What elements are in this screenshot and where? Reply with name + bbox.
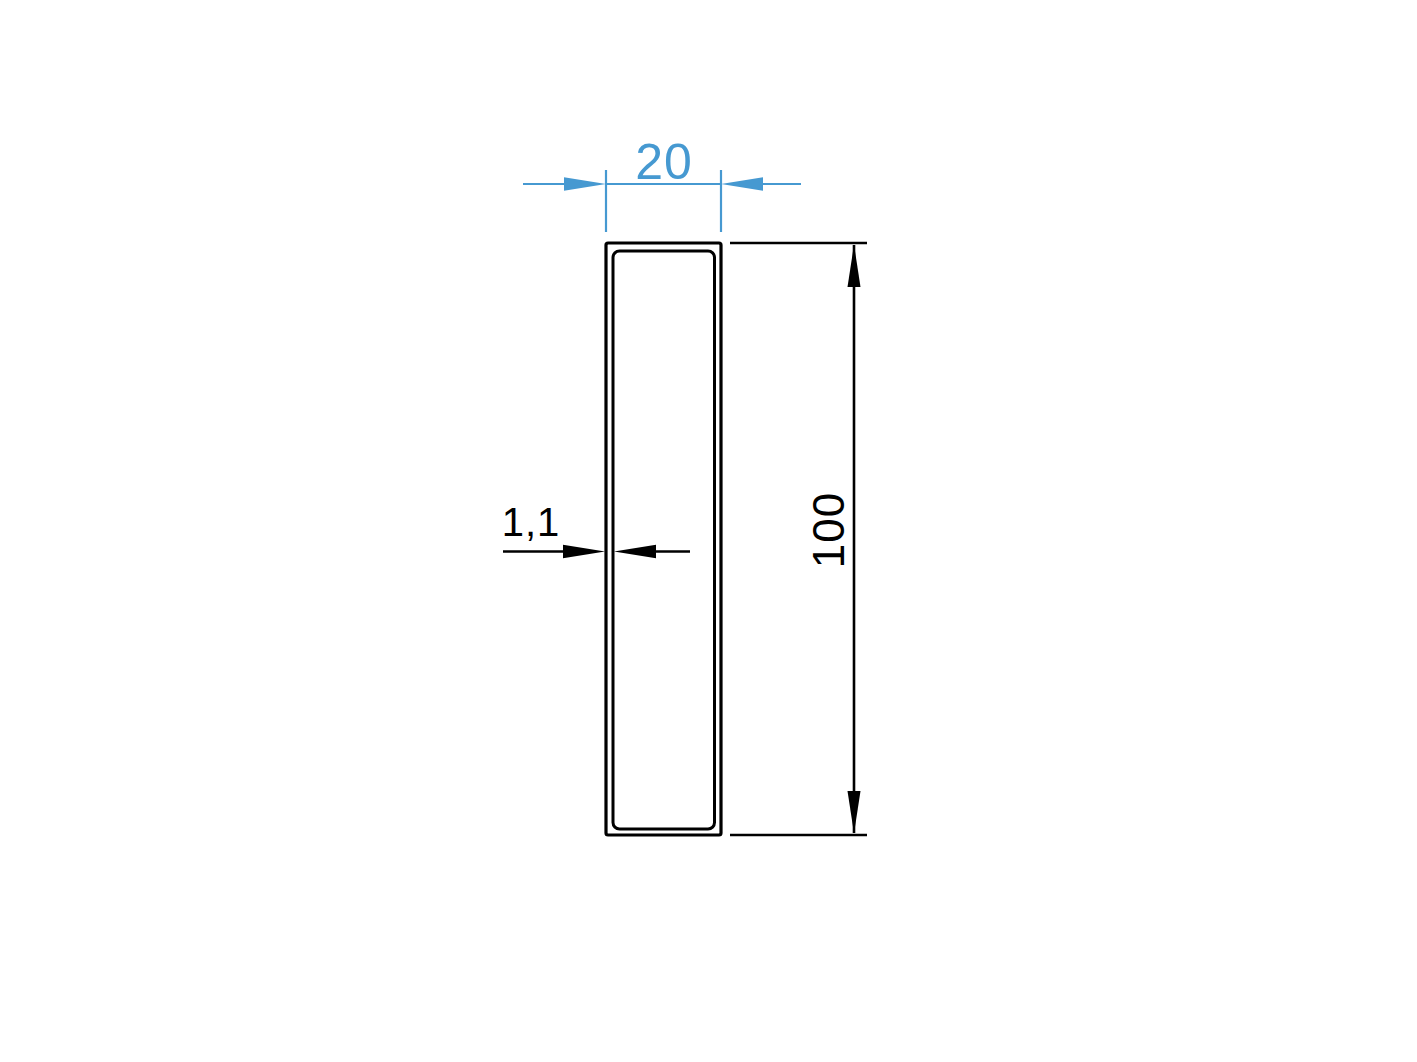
wall-thickness-label: 1,1 bbox=[502, 500, 561, 544]
drawing-canvas: 20 100 1,1 bbox=[0, 0, 1417, 1062]
width-dim-arrow-right-icon bbox=[721, 177, 763, 191]
width-dimension: 20 bbox=[523, 134, 801, 232]
width-dimension-label: 20 bbox=[635, 134, 693, 190]
wall-dim-arrow-left-icon bbox=[614, 545, 656, 559]
wall-dim-arrow-right-icon bbox=[563, 545, 605, 559]
profile-inner-contour bbox=[613, 251, 715, 829]
width-dim-arrow-left-icon bbox=[564, 177, 606, 191]
profile-cross-section bbox=[606, 243, 721, 835]
height-dimension: 100 bbox=[730, 243, 867, 835]
drawing-page: 20 100 1,1 bbox=[0, 0, 1417, 1062]
height-dim-arrow-up-icon bbox=[848, 245, 861, 288]
height-dim-arrow-down-icon bbox=[848, 791, 861, 834]
wall-thickness-dimension: 1,1 bbox=[502, 500, 690, 558]
height-dimension-label: 100 bbox=[804, 492, 853, 568]
profile-outer-contour bbox=[606, 243, 721, 835]
